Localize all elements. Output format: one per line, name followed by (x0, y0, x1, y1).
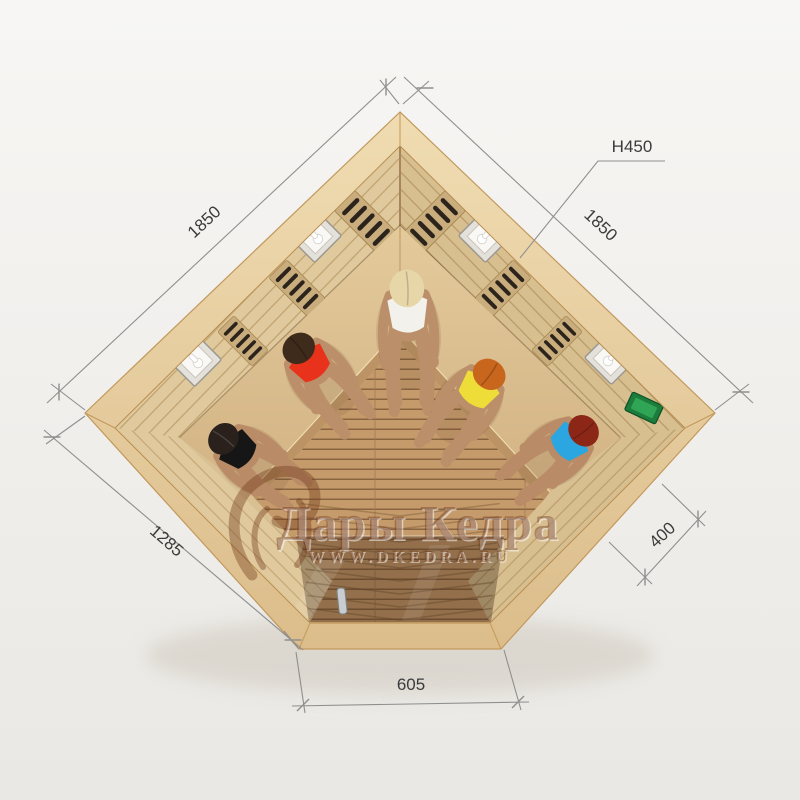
dimension-label: 605 (397, 675, 425, 694)
sauna-top-view-scene: Дары Кедра Дары Кедра WWW.DKEDRA.RU WWW.… (0, 0, 800, 800)
brand-name: Дары Кедра (276, 495, 559, 551)
dimension-label: H450 (612, 137, 653, 156)
site-url: WWW.DKEDRA.RU (307, 547, 511, 566)
product-render-canvas: Дары Кедра Дары Кедра WWW.DKEDRA.RU WWW.… (0, 0, 800, 800)
